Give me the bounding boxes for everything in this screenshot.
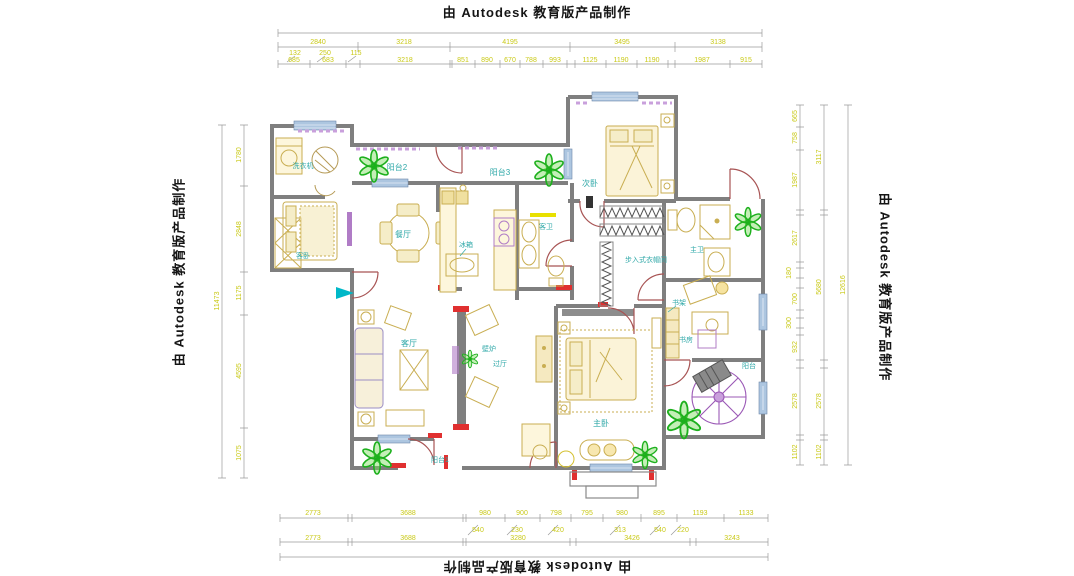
room-label-balcony1: 阳台1 (431, 455, 449, 464)
kitchen-furniture (440, 185, 516, 292)
dim-label: 300 (786, 317, 793, 329)
dim-label: 2578 (792, 393, 799, 409)
dim-label: 665 (792, 110, 799, 122)
dim-label: 12616 (840, 275, 847, 295)
fireplace-insert (452, 346, 459, 374)
dim-label: 11473 (214, 291, 221, 310)
room-label-guest-bedroom: 客卧 (296, 251, 310, 260)
dim-label: 3688 (400, 535, 416, 542)
dim-label: 895 (653, 510, 665, 517)
plant-icon (632, 441, 658, 468)
dim-label: 900 (516, 510, 528, 517)
dim-label: 5680 (816, 279, 823, 295)
dim-label: 683 (322, 57, 334, 64)
dim-label: 3218 (396, 39, 412, 46)
dim-label: 4595 (236, 363, 243, 379)
cad-floorplan-screenshot: 由 Autodesk 教育版产品制作 由 Autodesk 教育版产品制作 由 … (0, 0, 1074, 576)
room-label-walkin-closet: 步入式衣帽间 (625, 255, 667, 264)
dim-label: 758 (792, 132, 799, 144)
room-label-dining: 餐厅 (395, 230, 411, 239)
dim-label: 932 (792, 341, 799, 353)
hallway-furniture (522, 336, 552, 459)
plant-icon (359, 150, 390, 182)
room-label-guest-bath: 客卫 (539, 222, 553, 231)
master-bath-fixtures (668, 205, 730, 276)
dim-label: 3495 (614, 39, 630, 46)
window (294, 121, 336, 130)
dim-label: 685 (288, 57, 300, 64)
dim-label: 540 (654, 527, 666, 534)
dim-label: 180 (786, 267, 793, 279)
dim-label: 230 (511, 527, 523, 534)
room-label-balcony2: 阳台2 (387, 162, 408, 172)
dim-label: 1075 (236, 445, 243, 461)
dim-label: 3688 (400, 510, 416, 517)
dim-label: 670 (504, 57, 516, 64)
guest-bedroom-furniture (283, 202, 352, 260)
dim-label: 3218 (397, 57, 413, 64)
floorplan-drawing[interactable]: 2840 3218 4195 3495 3138 132 250 115 685… (0, 0, 1074, 576)
dim-label: 1193 (692, 510, 707, 517)
dim-label: 1987 (792, 172, 799, 188)
dim-label: 993 (549, 57, 561, 64)
entry-platform (570, 472, 656, 498)
room-label-hallway: 过厅 (493, 359, 507, 368)
study-furniture (666, 276, 728, 358)
dim-label: 1133 (738, 510, 753, 517)
dim-label: 795 (581, 510, 593, 517)
room-label-master-bedroom: 主卧 (593, 418, 609, 428)
dim-label: 980 (479, 510, 491, 517)
dim-label: 2617 (792, 230, 799, 246)
dim-label: 1125 (582, 57, 597, 64)
dimension-lines (218, 29, 852, 561)
dim-label: 1190 (613, 57, 628, 64)
closet-hangers (600, 206, 664, 306)
right-balcony-furniture (692, 360, 746, 424)
plant-icon (666, 402, 702, 439)
secondary-bedroom-furniture (606, 114, 674, 196)
dim-label: 3117 (816, 149, 823, 164)
lounge-chair (693, 360, 731, 393)
curtain (347, 212, 352, 246)
dim-label: 2848 (236, 221, 243, 237)
dim-label: 250 (319, 50, 331, 57)
dim-label: 890 (481, 57, 493, 64)
dim-label: 2578 (816, 393, 823, 409)
dim-label: 915 (740, 57, 752, 64)
room-label-secondary-bedroom: 次卧 (582, 178, 598, 188)
dim-label: 1175 (236, 285, 243, 300)
dim-label: 980 (616, 510, 628, 517)
dim-label: 3243 (724, 535, 740, 542)
dim-label: 1190 (644, 57, 659, 64)
dim-label: 313 (614, 527, 626, 534)
plant-icon (734, 208, 762, 237)
dim-label: 2840 (310, 39, 326, 46)
room-label-master-bath: 主卫 (690, 245, 704, 254)
room-label-study: 书房 (679, 335, 693, 344)
dim-label: 1987 (694, 57, 710, 64)
dim-label: 1102 (816, 444, 823, 459)
door-hinge-mark (586, 196, 593, 208)
dim-label: 132 (289, 50, 301, 57)
room-label-living: 客厅 (401, 338, 417, 348)
dim-label: 851 (457, 57, 469, 64)
dim-label: 2773 (305, 510, 321, 517)
living-room-furniture (355, 305, 498, 426)
room-label-balcony3: 阳台3 (490, 167, 511, 177)
dim-label: 420 (552, 527, 564, 534)
room-label-fireplace: 壁炉 (482, 344, 496, 353)
dim-label: 540 (472, 527, 484, 534)
room-label-laundry: 洗衣机 (293, 161, 314, 170)
room-label-bookshelf: 书架 (672, 298, 686, 307)
window (592, 92, 638, 101)
dim-label: 3280 (510, 535, 526, 542)
dim-label: 1780 (236, 147, 243, 163)
dim-label: 220 (677, 527, 689, 534)
dim-label: 3138 (710, 39, 726, 46)
dim-label: 788 (525, 57, 537, 64)
dim-label: 798 (550, 510, 562, 517)
dim-label: 4195 (502, 39, 518, 46)
room-label-fridge: 冰箱 (459, 240, 473, 249)
dim-label: 2773 (305, 535, 321, 542)
dim-label: 1102 (792, 444, 799, 459)
dim-label: 115 (350, 50, 361, 57)
dim-label: 3426 (624, 535, 640, 542)
dim-label: 700 (792, 293, 799, 305)
room-label-balcony-right: 阳台 (742, 361, 756, 370)
dining-furniture (380, 204, 448, 262)
